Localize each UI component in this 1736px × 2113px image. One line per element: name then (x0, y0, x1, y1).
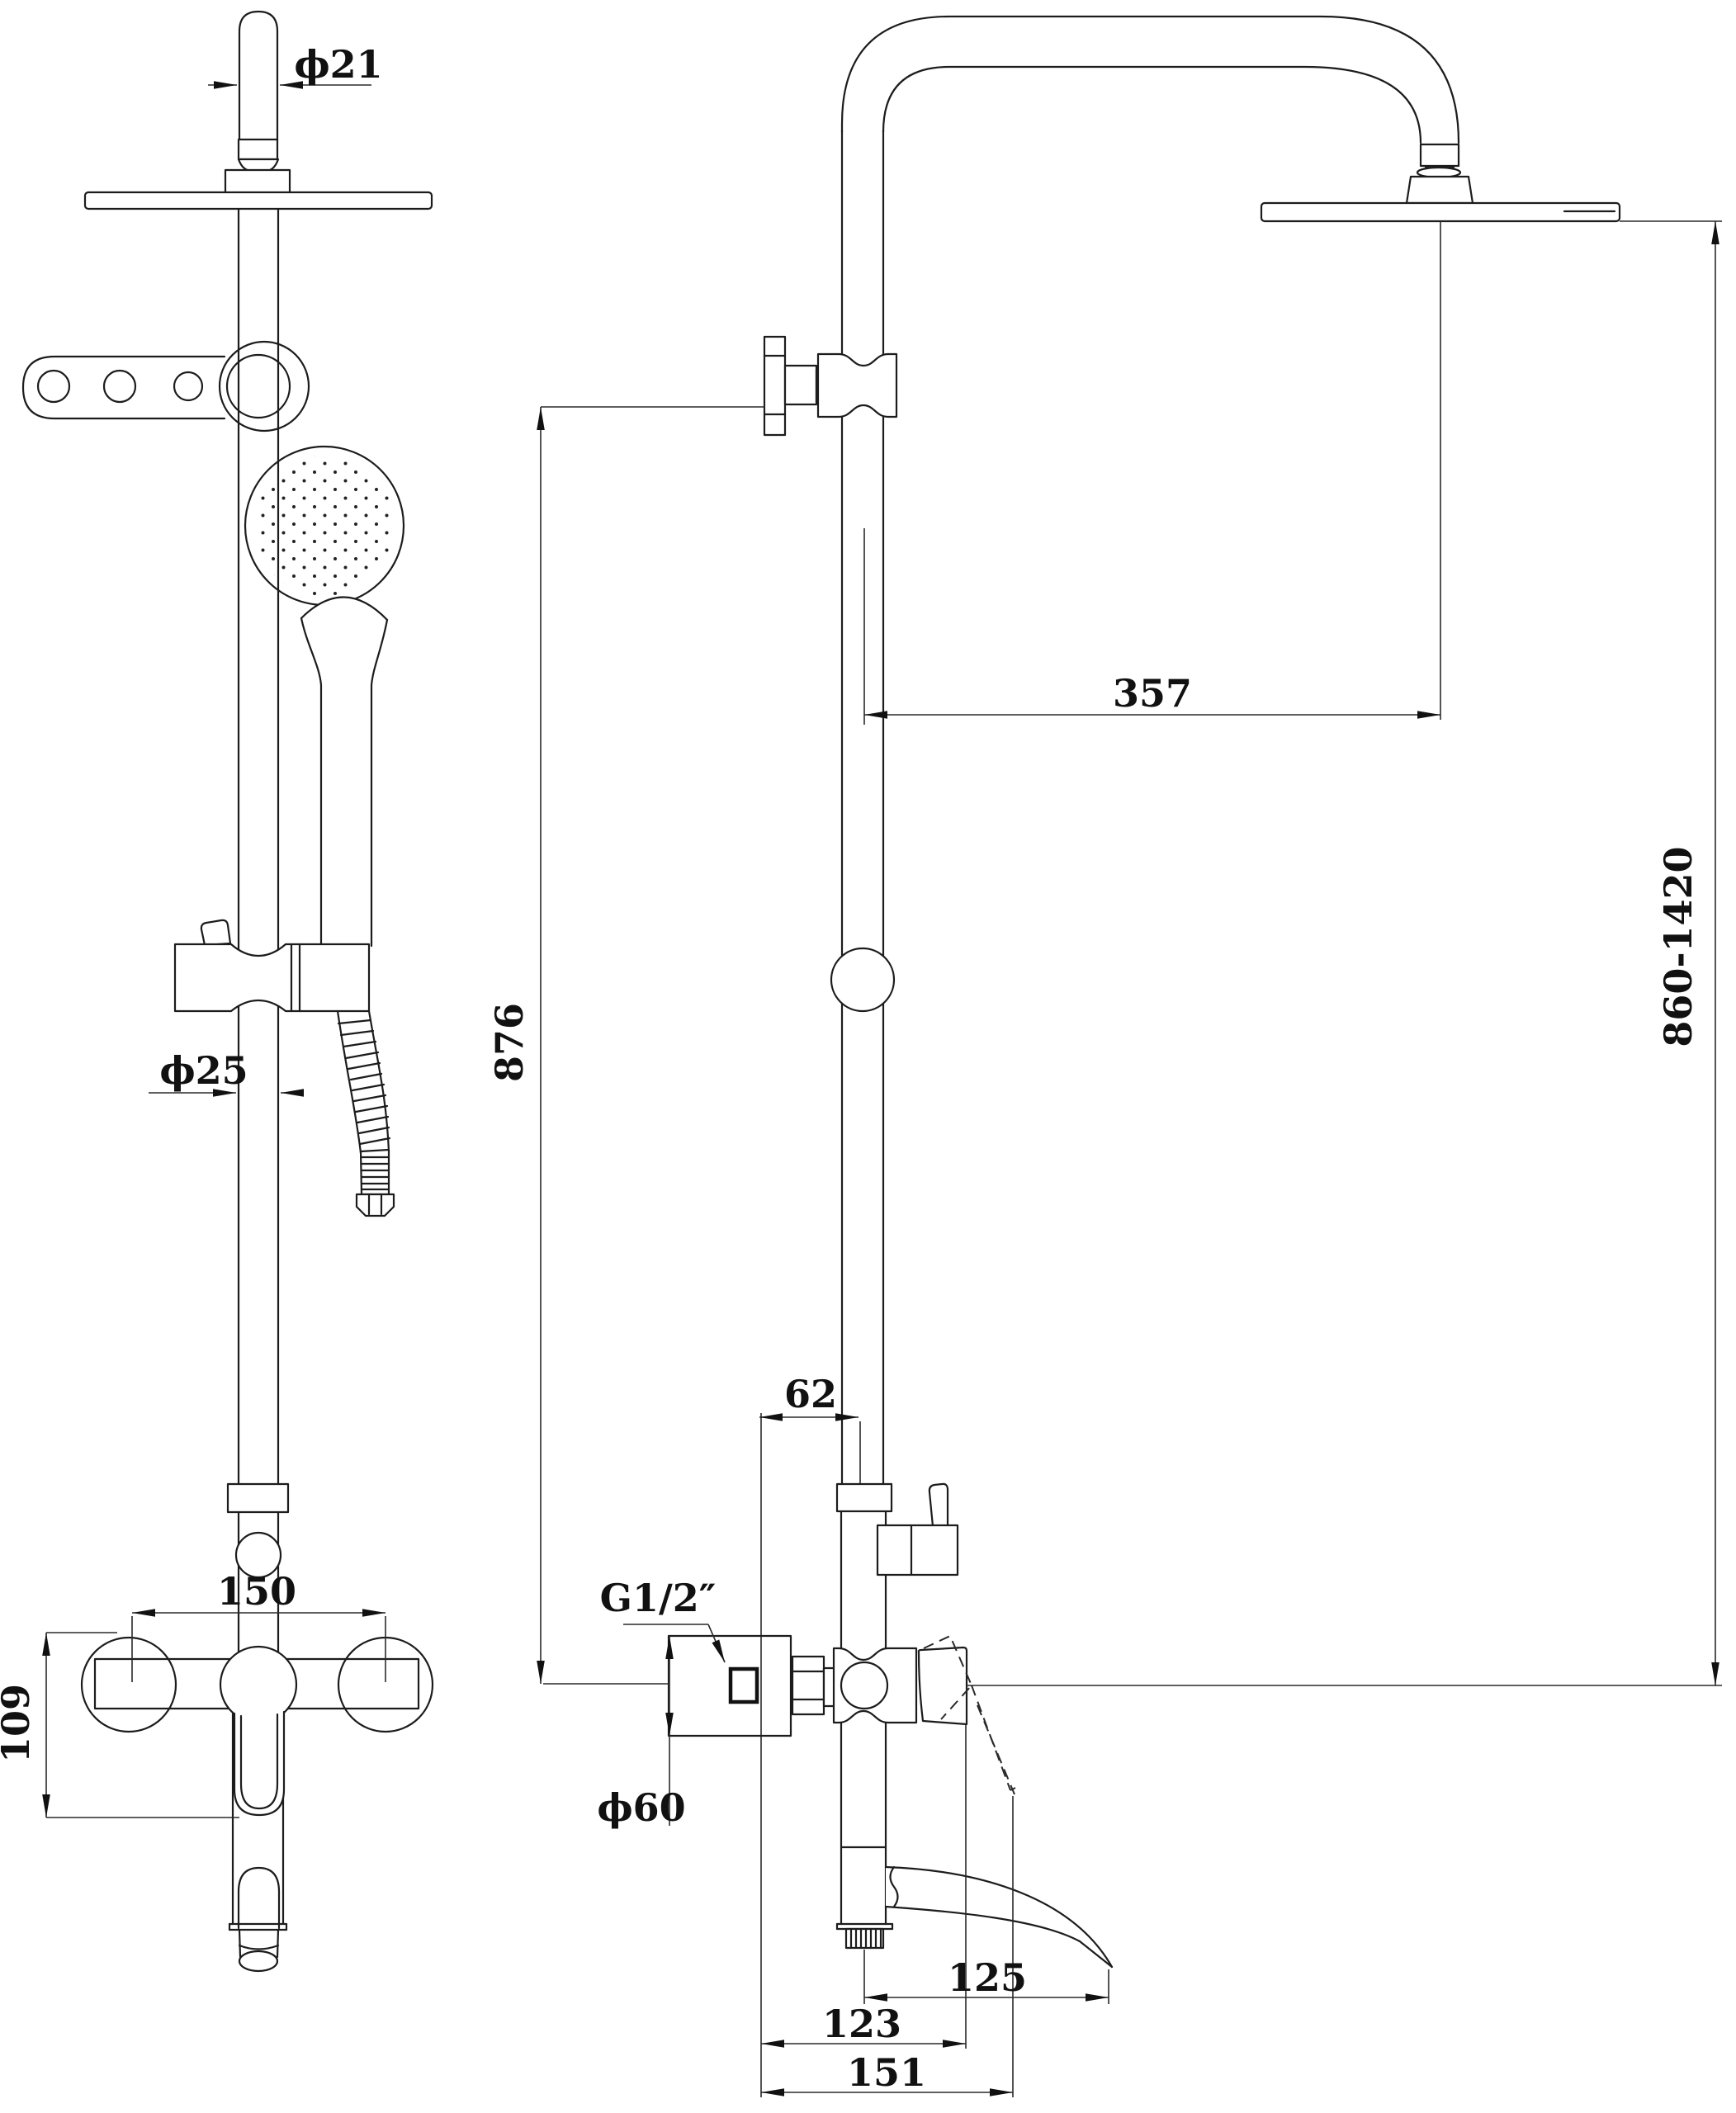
dim-62-label: 62 (784, 1372, 837, 1416)
dim-phi21: ϕ21 (208, 42, 383, 87)
drawing-sheet: ϕ21 (0, 0, 1736, 2113)
label-g12-text: G1/2″ (600, 1576, 717, 1620)
dim-860-1420-label: 860-1420 (1656, 846, 1701, 1047)
dim-357: 357 (864, 528, 1440, 725)
hand-shower (245, 447, 404, 946)
dim-151-label: 151 (847, 2050, 926, 2095)
overhead-arm (842, 17, 1473, 203)
holder-ring-side (831, 948, 894, 1011)
inlet-g12-fitting (731, 1669, 757, 1702)
dim-150-label: 150 (217, 1569, 296, 1614)
diverter-side (837, 1484, 958, 1575)
shower-hose (338, 1011, 394, 1216)
dim-860-1420: 860-1420 (1620, 221, 1722, 1685)
dim-109-label: 109 (0, 1684, 38, 1763)
dim-phi25-label: ϕ25 (159, 1048, 248, 1093)
dim-125: 125 (864, 1955, 1109, 2000)
dim-phi60-label: ϕ60 (597, 1785, 685, 1830)
top-pipe-and-head (85, 12, 432, 209)
side-view: 357 62 (487, 17, 1722, 2097)
dim-876: 876 (487, 407, 764, 1684)
arm-bracket (23, 342, 309, 431)
front-view: ϕ21 (0, 12, 433, 1971)
wall-bracket (764, 337, 896, 435)
tub-spout (886, 1867, 1112, 1967)
technical-drawing: ϕ21 (0, 0, 1736, 2113)
dim-123-label: 123 (822, 2002, 901, 2046)
dim-62: 62 (759, 1372, 860, 2097)
dim-phi25: ϕ25 (149, 1048, 299, 1093)
dim-357-label: 357 (1113, 671, 1192, 716)
dim-phi21-label: ϕ21 (294, 42, 382, 87)
label-g12: G1/2″ (600, 1576, 725, 1662)
dim-876-label: 876 (487, 1003, 532, 1082)
mixer-front (82, 1638, 433, 1971)
dim-151: 151 (761, 2050, 1013, 2095)
dim-125-label: 125 (948, 1955, 1027, 2000)
dim-123: 123 (761, 2002, 966, 2046)
rain-head-plate (1261, 203, 1620, 720)
dim-phi60: ϕ60 (597, 1636, 685, 1830)
